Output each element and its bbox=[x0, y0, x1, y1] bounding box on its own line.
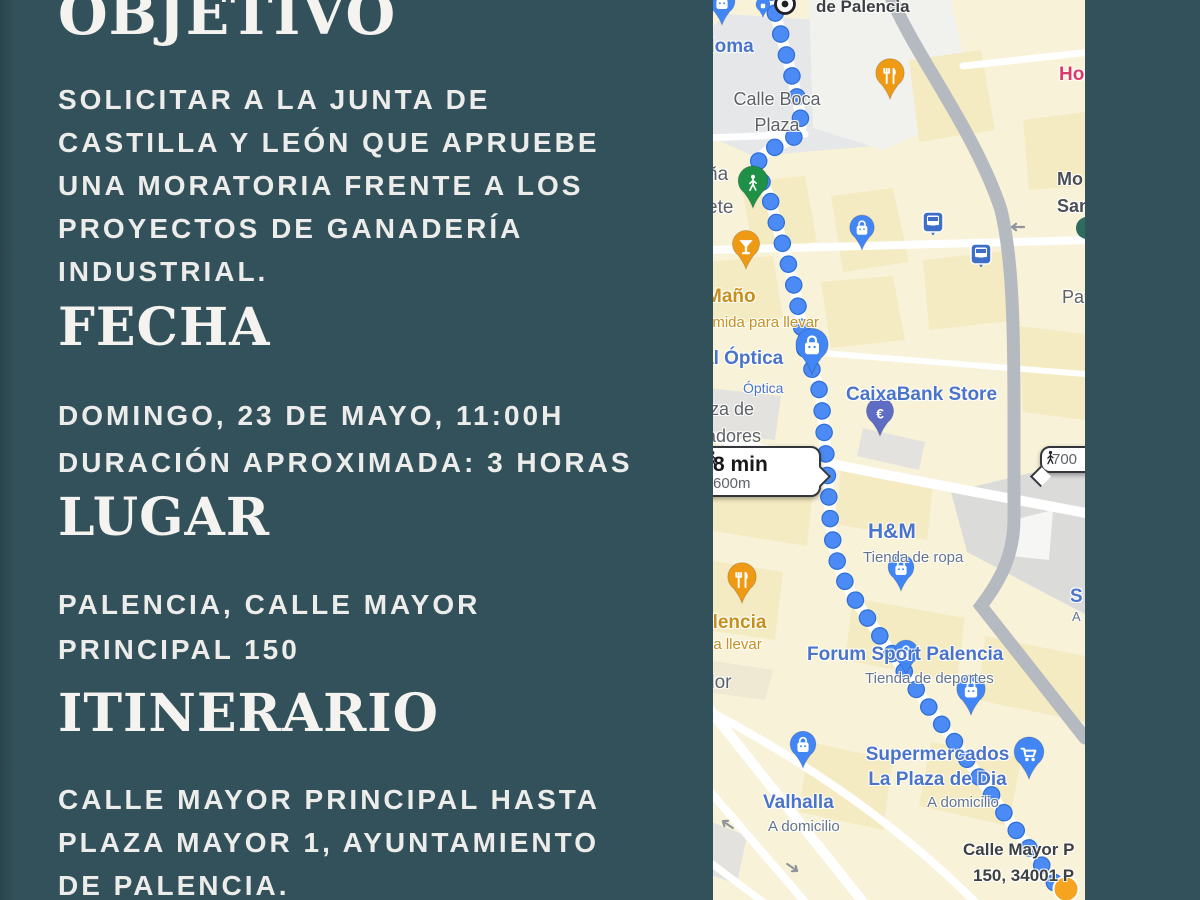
walking-icon bbox=[1042, 448, 1059, 468]
section-lugar-body: PALENCIA, CALLE MAYOR PRINCIPAL 150 bbox=[58, 582, 480, 672]
map-label-hm[interactable]: H&M bbox=[868, 520, 916, 544]
lugar-heading: LUGAR bbox=[58, 490, 270, 546]
route-distance: 600m bbox=[713, 475, 809, 492]
walking-icon bbox=[713, 448, 722, 470]
section-fecha-heading: FECHA bbox=[58, 300, 270, 356]
section-lugar-heading: LUGAR bbox=[58, 490, 270, 546]
lugar-line: PRINCIPAL 150 bbox=[58, 627, 480, 672]
shopping-pin-optica[interactable] bbox=[796, 328, 828, 374]
objetivo-line: CASTILLA Y LEÓN QUE APRUEBE bbox=[58, 121, 600, 164]
oneway-arrow-icon bbox=[1012, 224, 1024, 230]
map-label-na-ete: ña ete bbox=[713, 158, 733, 224]
map-label-alencia[interactable]: alencia bbox=[713, 612, 766, 634]
itinerario-line: DE PALENCIA. bbox=[58, 864, 600, 900]
section-fecha-body: DOMINGO, 23 DE MAYO, 11:00H DURACIÓN APR… bbox=[58, 392, 633, 486]
itinerario-line: CALLE MAYOR PRINCIPAL HASTA bbox=[58, 778, 600, 821]
section-objetivo-body: SOLICITAR A LA JUNTA DE CASTILLA Y LEÓN … bbox=[58, 78, 600, 293]
route-callout-right[interactable]: 700 bbox=[1040, 446, 1085, 473]
shopping-pin[interactable] bbox=[850, 215, 875, 250]
objetivo-line: UNA MORATORIA FRENTE A LOS bbox=[58, 164, 600, 207]
map-label-forum-sub: Tienda de deportes bbox=[865, 670, 994, 687]
restaurant-pin[interactable] bbox=[728, 563, 756, 603]
section-objetivo-heading: OBJETIVO bbox=[58, 0, 396, 46]
map-label-mano[interactable]: Maño bbox=[713, 286, 756, 308]
map-label-al-optica[interactable]: al Óptica bbox=[713, 348, 783, 370]
map-label-mano-sub: omida para llevar bbox=[713, 314, 819, 331]
map-label-ho[interactable]: Ho bbox=[1059, 64, 1084, 86]
objetivo-line: INDUSTRIAL. bbox=[58, 250, 600, 293]
route-callout-left[interactable]: 8 min 600m bbox=[713, 446, 821, 497]
poi-dot-icon bbox=[1076, 217, 1085, 239]
google-map-screenshot[interactable]: € bbox=[713, 0, 1085, 900]
map-label-plaza-radores: aza de radores bbox=[713, 396, 761, 450]
objetivo-line: SOLICITAR A LA JUNTA DE bbox=[58, 78, 600, 121]
oneway-arrow-icon bbox=[785, 861, 799, 873]
objetivo-line: PROYECTOS DE GANADERÍA bbox=[58, 207, 600, 250]
map-label-ara-llevar: ara llevar bbox=[713, 636, 762, 653]
map-label-supermercados[interactable]: Supermercados La Plaza de Dia bbox=[825, 742, 1050, 792]
map-label-doma[interactable]: doma bbox=[713, 36, 754, 58]
map-label-calle-mayor-2: 150, 34001 P bbox=[973, 866, 1074, 886]
lugar-line: PALENCIA, CALLE MAYOR bbox=[58, 582, 480, 627]
flyer-root: OBJETIVO SOLICITAR A LA JUNTA DE CASTILL… bbox=[0, 0, 1200, 900]
map-label-valhalla-sub: A domicilio bbox=[768, 818, 840, 835]
map-label-supermercados-sub: A domicilio bbox=[913, 794, 1013, 811]
map-label-s[interactable]: S bbox=[1070, 586, 1083, 608]
map-label-optica-sub: Óptica bbox=[743, 380, 783, 396]
map-label-calle-mayor-1: Calle Mayor P bbox=[963, 840, 1075, 860]
poster-panel: OBJETIVO SOLICITAR A LA JUNTA DE CASTILL… bbox=[0, 0, 713, 900]
itinerario-heading: ITINERARIO bbox=[58, 686, 439, 742]
map-label-pa: Pa bbox=[1062, 287, 1084, 308]
map-label-calle-boca-plaza: Calle Boca Plaza bbox=[721, 86, 833, 138]
map-label-mo-san[interactable]: Mo San bbox=[1057, 166, 1085, 220]
map-label-forum[interactable]: Forum Sport Palencia bbox=[807, 644, 1003, 666]
euro-icon: € bbox=[876, 407, 884, 422]
objetivo-heading: OBJETIVO bbox=[58, 0, 396, 46]
map-label-a: A bbox=[1072, 610, 1081, 625]
section-itinerario-body: CALLE MAYOR PRINCIPAL HASTA PLAZA MAYOR … bbox=[58, 778, 600, 900]
fecha-line: DOMINGO, 23 DE MAYO, 11:00H bbox=[58, 392, 633, 439]
section-itinerario-heading: ITINERARIO bbox=[58, 686, 439, 742]
map-label-valhalla[interactable]: Valhalla bbox=[763, 792, 834, 814]
fecha-line: DURACIÓN APROXIMADA: 3 HORAS bbox=[58, 439, 633, 486]
oneway-arrow-icon bbox=[721, 819, 735, 831]
shopping-pin[interactable] bbox=[713, 0, 735, 25]
map-label-caixabank[interactable]: CaixaBank Store bbox=[846, 384, 997, 406]
bar-pin[interactable] bbox=[732, 230, 759, 269]
map-label-hm-sub: Tienda de ropa bbox=[863, 549, 963, 566]
landmark-bullseye-icon[interactable] bbox=[776, 0, 795, 14]
bus-station-icon[interactable] bbox=[923, 212, 943, 236]
restaurant-pin[interactable] bbox=[876, 59, 904, 99]
itinerario-line: PLAZA MAYOR 1, AYUNTAMIENTO bbox=[58, 821, 600, 864]
fecha-heading: FECHA bbox=[58, 300, 270, 356]
shopping-pin-valhalla[interactable] bbox=[790, 731, 816, 768]
map-label-dor: dor bbox=[713, 672, 731, 694]
bus-station-icon[interactable] bbox=[971, 244, 991, 268]
map-label-de-palencia[interactable]: de Palencia bbox=[816, 0, 910, 17]
